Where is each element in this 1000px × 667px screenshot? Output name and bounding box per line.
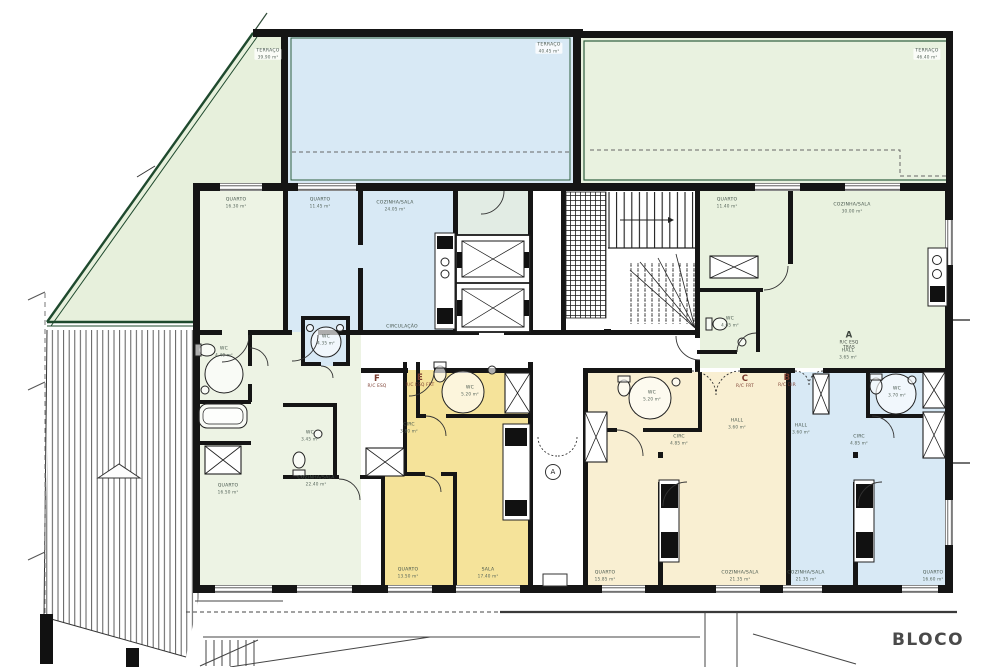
label-quarto-blue: QUARTO11.45 m²	[310, 198, 331, 209]
label-wc-b: WC3.70 m²	[888, 387, 906, 398]
label-unit-b: BR/C DIR	[778, 374, 796, 388]
label-wc-f2: WC3.45 m²	[301, 431, 319, 442]
label-unit-a: AR/C ESQTRAS	[839, 332, 858, 351]
label-terraco-right: TERRAÇO46.40 m²	[913, 49, 940, 60]
label-wc-c: WC5.20 m²	[643, 391, 661, 402]
label-cozinha-sala-blue: COZINHA/SALA24.05 m²	[376, 201, 413, 212]
label-wc-a: WC4.65 m²	[721, 317, 739, 328]
label-cozinha-sala-f: COZINHA/SALA22.40 m²	[297, 476, 334, 487]
label-wc-blue: WC4.35 m²	[317, 335, 335, 346]
label-quarto-f1: QUARTO16.30 m²	[226, 198, 247, 209]
label-quarto-f2: QUARTO16.50 m²	[218, 484, 239, 495]
plan-label-layer: TERRAÇO39.90 m²TERRAÇO40.45 m²TERRAÇO46.…	[0, 0, 1000, 667]
label-cozinha-sala-c: COZINHA/SALA21.35 m²	[721, 571, 758, 582]
label-cozinha-sala-a: COZINHA/SALA30.00 m²	[833, 203, 870, 214]
label-bloco: BLOCO	[892, 630, 964, 650]
label-circ-b: CIRC4.85 m²	[850, 435, 868, 446]
label-unit-e: ER/C ESQ FRT	[406, 374, 435, 388]
label-cozinha-sala-b: COZINHA/SALA21.35 m²	[787, 571, 824, 582]
label-hall-c: HALL3.60 m²	[728, 419, 746, 430]
floor-plan-canvas: TERRAÇO39.90 m²TERRAÇO40.45 m²TERRAÇO46.…	[0, 0, 1000, 667]
label-hall-b: HALL3.60 m²	[792, 424, 810, 435]
label-circulacao: CIRCULAÇÃO	[386, 324, 418, 330]
label-unit-f: FR/C ESQ	[367, 375, 386, 389]
label-quarto-a: QUARTO11.40 m²	[717, 198, 738, 209]
label-quarto-e: QUARTO13.50 m²	[398, 568, 419, 579]
label-quarto-c: QUARTO15.85 m²	[595, 571, 616, 582]
label-circ-c: CIRC4.85 m²	[670, 435, 688, 446]
label-sala-e: SALA17.40 m²	[478, 568, 499, 579]
label-unit-c: CR/C FRT	[736, 375, 754, 389]
label-terraco-mid: TERRAÇO40.45 m²	[535, 43, 562, 54]
label-wc-f1: WC4.40 m²	[215, 347, 233, 358]
label-quarto-b: QUARTO16.60 m²	[923, 571, 944, 582]
label-section-marker-a: A	[545, 464, 561, 480]
label-terraco-left: TERRAÇO39.90 m²	[254, 49, 281, 60]
label-wc-e: WC5.20 m²	[461, 386, 479, 397]
label-circ-e: CIRC3.80 m²	[400, 423, 418, 434]
